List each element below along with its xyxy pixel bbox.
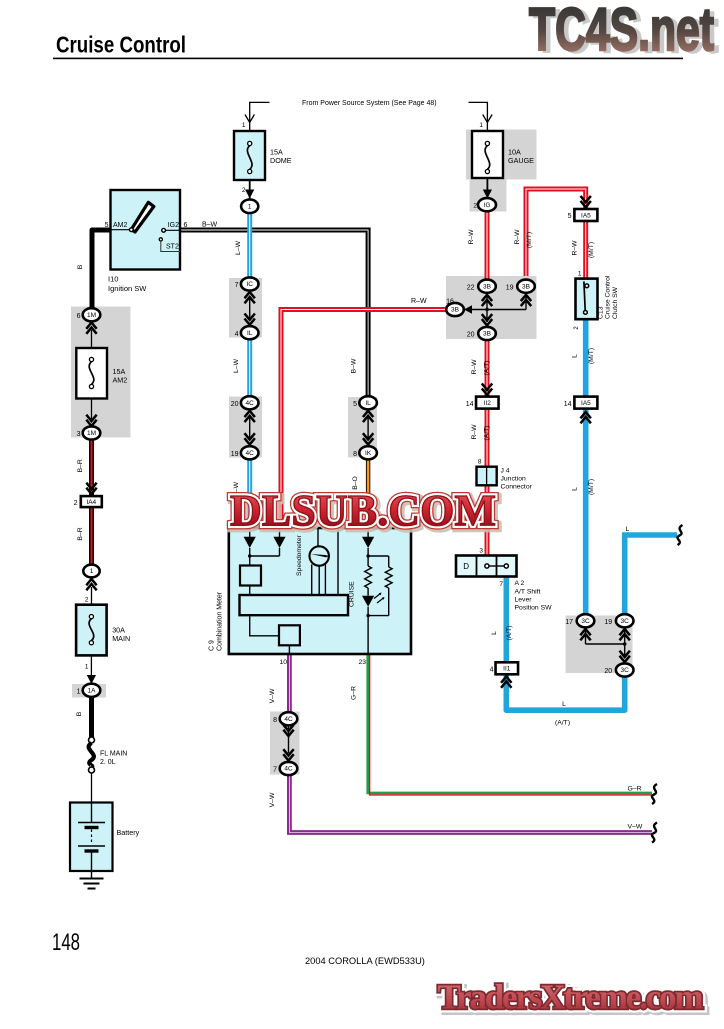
svg-text:A/T Shift: A/T Shift — [515, 589, 541, 596]
svg-text:4C: 4C — [246, 450, 255, 457]
svg-text:2: 2 — [242, 187, 246, 194]
svg-text:R–W: R–W — [468, 229, 475, 245]
svg-text:Clutch SW: Clutch SW — [612, 286, 619, 319]
svg-text:TradersXtreme.com: TradersXtreme.com — [438, 978, 704, 1017]
svg-text:3B: 3B — [451, 307, 459, 314]
svg-text:IC: IC — [246, 281, 253, 288]
svg-text:19: 19 — [506, 284, 514, 291]
svg-text:Connector: Connector — [501, 484, 533, 491]
svg-text:V–W: V–W — [628, 824, 643, 831]
svg-text:7: 7 — [273, 767, 277, 774]
svg-text:5: 5 — [568, 213, 572, 220]
svg-text:R–W: R–W — [411, 298, 427, 305]
svg-text:L: L — [572, 487, 579, 491]
svg-text:(M/T): (M/T) — [526, 232, 533, 248]
svg-text:IK: IK — [365, 450, 372, 457]
svg-text:V–W: V–W — [269, 792, 276, 807]
svg-text:TC4S.net: TC4S.net — [529, 0, 714, 63]
svg-text:A 2: A 2 — [515, 580, 525, 587]
svg-text:B–R: B–R — [77, 527, 84, 540]
svg-text:5: 5 — [353, 401, 357, 408]
svg-text:20: 20 — [231, 401, 239, 408]
svg-text:B–W: B–W — [351, 358, 358, 373]
svg-text:R–W: R–W — [471, 424, 478, 440]
svg-text:GAUGE: GAUGE — [508, 156, 534, 165]
svg-text:(A/T): (A/T) — [506, 625, 513, 640]
svg-text:2: 2 — [74, 500, 78, 507]
svg-text:1: 1 — [90, 568, 94, 575]
svg-text:Combination Meter: Combination Meter — [217, 591, 224, 651]
svg-text:10: 10 — [279, 659, 287, 666]
svg-text:R–W: R–W — [572, 240, 579, 256]
svg-text:(M/T): (M/T) — [588, 242, 595, 258]
svg-text:3C: 3C — [621, 618, 630, 625]
svg-text:Speedometer: Speedometer — [296, 534, 303, 576]
svg-text:3B: 3B — [483, 331, 491, 338]
svg-text:I10: I10 — [108, 275, 118, 284]
svg-text:L: L — [572, 354, 579, 358]
svg-text:IA5: IA5 — [581, 212, 591, 219]
svg-text:From Power Source System (See: From Power Source System (See Page 48) — [302, 100, 437, 107]
svg-text:6: 6 — [77, 313, 81, 320]
svg-text:19: 19 — [604, 619, 612, 626]
svg-text:(M/T): (M/T) — [588, 348, 595, 364]
svg-text:Junction: Junction — [501, 476, 527, 483]
svg-text:8: 8 — [273, 717, 277, 724]
svg-text:ST2: ST2 — [166, 244, 179, 251]
svg-text:CRUISE: CRUISE — [349, 581, 356, 607]
svg-text:1M: 1M — [87, 430, 96, 437]
svg-text:1: 1 — [77, 689, 81, 696]
svg-text:B: B — [77, 264, 84, 269]
svg-text:II2: II2 — [484, 400, 492, 407]
svg-text:4C: 4C — [284, 766, 293, 773]
svg-text:V–W: V–W — [269, 688, 276, 703]
svg-text:L: L — [626, 526, 630, 533]
svg-text:22: 22 — [467, 284, 475, 291]
svg-text:L–W: L–W — [235, 240, 242, 255]
svg-text:AM2: AM2 — [113, 376, 128, 385]
svg-text:4C: 4C — [246, 400, 255, 407]
svg-text:4: 4 — [490, 667, 494, 674]
svg-text:7: 7 — [499, 581, 503, 588]
svg-text:17: 17 — [565, 619, 573, 626]
svg-text:(A/T): (A/T) — [484, 425, 491, 440]
svg-text:2: 2 — [85, 597, 89, 604]
svg-text:6: 6 — [184, 222, 188, 229]
svg-text:L–W: L–W — [233, 358, 240, 373]
svg-text:G–R: G–R — [628, 786, 642, 793]
svg-text:IG2: IG2 — [168, 222, 179, 229]
svg-text:D: D — [463, 562, 469, 571]
svg-text:3: 3 — [77, 431, 81, 438]
svg-text:19: 19 — [231, 451, 239, 458]
svg-text:148: 148 — [52, 929, 80, 956]
svg-text:14: 14 — [466, 401, 474, 408]
svg-text:1: 1 — [479, 122, 483, 129]
svg-text:Ignition SW: Ignition SW — [108, 284, 147, 293]
svg-text:IL: IL — [365, 400, 371, 407]
svg-text:DLSUB.COM: DLSUB.COM — [230, 486, 496, 535]
svg-text:7: 7 — [235, 282, 239, 289]
svg-text:IG: IG — [484, 202, 491, 209]
svg-text:4C: 4C — [284, 716, 293, 723]
svg-text:3: 3 — [479, 548, 483, 555]
svg-text:B–R: B–R — [77, 459, 84, 472]
svg-text:20: 20 — [467, 332, 475, 339]
svg-text:IA5: IA5 — [581, 400, 591, 407]
svg-text:IA4: IA4 — [86, 499, 96, 506]
svg-text:14: 14 — [564, 401, 572, 408]
svg-text:5: 5 — [105, 222, 109, 229]
svg-text:23: 23 — [358, 659, 366, 666]
svg-text:20: 20 — [604, 668, 612, 675]
svg-text:IL: IL — [247, 330, 253, 337]
svg-text:16: 16 — [446, 299, 454, 306]
svg-text:L: L — [562, 701, 566, 708]
svg-text:DOME: DOME — [270, 156, 292, 165]
svg-text:G–R: G–R — [351, 686, 358, 700]
svg-text:(A/T): (A/T) — [555, 720, 570, 727]
svg-text:1: 1 — [85, 664, 89, 671]
svg-text:MAIN: MAIN — [112, 634, 130, 643]
svg-text:2004 COROLLA (EWD533U): 2004 COROLLA (EWD533U) — [305, 956, 425, 966]
svg-text:1: 1 — [242, 122, 246, 129]
svg-text:(A/T): (A/T) — [484, 360, 491, 375]
svg-text:FL MAIN: FL MAIN — [100, 751, 127, 758]
svg-text:Lever: Lever — [515, 597, 533, 604]
svg-text:C 9: C 9 — [209, 640, 216, 651]
svg-text:2. 0L: 2. 0L — [100, 759, 116, 766]
svg-text:R–W: R–W — [471, 359, 478, 375]
svg-text:2: 2 — [473, 203, 477, 210]
svg-text:AM2: AM2 — [113, 222, 128, 229]
svg-text:1: 1 — [248, 204, 252, 211]
svg-text:Cruise Control: Cruise Control — [605, 275, 612, 319]
svg-text:L: L — [491, 631, 498, 635]
svg-text:8: 8 — [478, 459, 482, 466]
svg-text:3B: 3B — [483, 283, 491, 290]
svg-text:J 4: J 4 — [501, 468, 510, 475]
svg-text:C13: C13 — [598, 306, 605, 319]
svg-text:3B: 3B — [522, 283, 530, 290]
svg-text:1M: 1M — [87, 312, 96, 319]
svg-text:3C: 3C — [621, 667, 630, 674]
svg-text:1A: 1A — [88, 688, 97, 695]
svg-text:Cruise Control: Cruise Control — [56, 32, 186, 58]
svg-text:II1: II1 — [503, 666, 511, 673]
svg-text:Battery: Battery — [117, 828, 140, 837]
svg-text:1: 1 — [578, 271, 582, 278]
svg-text:R–W: R–W — [514, 229, 521, 245]
svg-text:Position SW: Position SW — [515, 605, 553, 612]
svg-text:8: 8 — [353, 451, 357, 458]
svg-text:(M/T): (M/T) — [588, 479, 595, 495]
svg-text:3C: 3C — [581, 618, 590, 625]
svg-text:B: B — [76, 711, 83, 716]
svg-text:4: 4 — [235, 331, 239, 338]
svg-text:B–W: B–W — [202, 222, 218, 229]
